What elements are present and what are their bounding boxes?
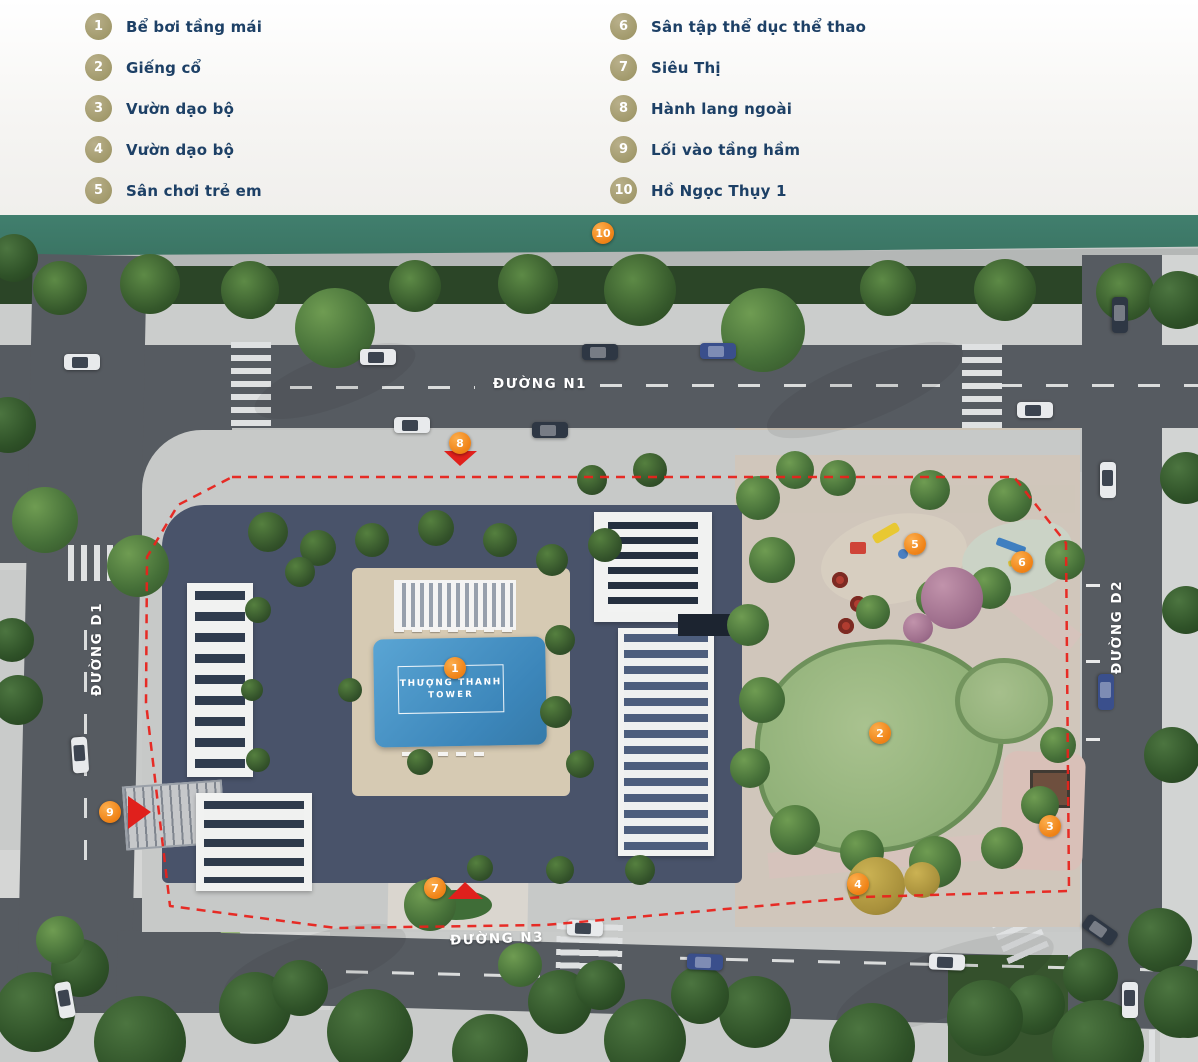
legend-item: 4Vườn dạo bộ — [85, 136, 262, 163]
tree — [1063, 948, 1118, 1003]
tree — [604, 254, 676, 326]
lane-tick — [1086, 660, 1100, 663]
tree — [588, 528, 622, 562]
car — [1112, 297, 1128, 333]
legend-number-badge: 7 — [610, 54, 637, 81]
pool-lounger — [394, 628, 404, 632]
tower-name-line1: THƯỢNG THANH — [400, 677, 502, 689]
louvers — [624, 634, 708, 850]
legend-item-label: Lối vào tầng hầm — [651, 141, 800, 159]
tower-name-line2: TOWER — [428, 690, 474, 701]
louvers — [195, 591, 245, 769]
pool-lounger — [474, 752, 484, 756]
tree — [947, 980, 1023, 1056]
car-roof — [1125, 990, 1136, 1006]
louvers — [204, 801, 304, 883]
tree — [633, 453, 667, 487]
tree — [974, 259, 1036, 321]
tree — [338, 678, 362, 702]
legend-number-badge: 4 — [85, 136, 112, 163]
site-plan-page: THƯỢNG THANH TOWER — [0, 0, 1198, 1062]
pool-lounger — [484, 628, 494, 632]
car-roof — [1103, 470, 1114, 486]
play-frame — [850, 542, 866, 554]
tree — [1040, 727, 1076, 763]
legend-item-label: Sân chơi trẻ em — [126, 182, 262, 200]
legend: 1Bể bơi tầng mái2Giếng cổ3Vườn dạo bộ4Vư… — [0, 0, 1198, 215]
tree — [904, 862, 940, 898]
legend-item: 6Sân tập thể dục thể thao — [610, 13, 866, 40]
car-roof — [1025, 405, 1041, 416]
legend-item-label: Vườn dạo bộ — [126, 141, 234, 159]
legend-item: 1Bể bơi tầng mái — [85, 13, 262, 40]
pool-lounger — [448, 628, 458, 632]
tree — [566, 750, 594, 778]
tree — [856, 595, 890, 629]
legend-number-badge: 3 — [85, 95, 112, 122]
car — [360, 349, 396, 365]
tree — [498, 254, 558, 314]
map-marker-9: 9 — [99, 801, 121, 823]
map-marker-4: 4 — [847, 873, 869, 895]
legend-number-badge: 2 — [85, 54, 112, 81]
legend-item-label: Bể bơi tầng mái — [126, 18, 262, 36]
pool-lounger — [412, 628, 422, 632]
tree — [903, 613, 933, 643]
pool-lounger — [466, 628, 476, 632]
tree — [730, 748, 770, 788]
tree — [467, 855, 493, 881]
car — [64, 354, 100, 370]
tree — [671, 966, 729, 1024]
legend-number-badge: 1 — [85, 13, 112, 40]
tree — [1045, 540, 1085, 580]
legend-item: 10Hồ Ngọc Thụy 1 — [610, 177, 866, 204]
tree — [245, 597, 271, 623]
tree — [749, 537, 795, 583]
tree — [820, 460, 856, 496]
round-bench — [838, 618, 854, 634]
map-marker-7: 7 — [424, 877, 446, 899]
map-marker-1: 1 — [444, 657, 466, 679]
legend-item: 7Siêu Thị — [610, 54, 866, 81]
tree — [248, 512, 288, 552]
pool-lounger — [438, 752, 448, 756]
tree — [33, 261, 87, 315]
road-label-d1: ĐƯỜNG D1 — [89, 569, 105, 729]
tree — [981, 827, 1023, 869]
legend-item: 9Lối vào tầng hầm — [610, 136, 866, 163]
tree — [625, 855, 655, 885]
car-roof — [575, 922, 591, 934]
crosswalk — [962, 344, 1002, 430]
tree — [910, 470, 950, 510]
car — [929, 953, 966, 970]
tree — [285, 557, 315, 587]
legend-item-label: Vườn dạo bộ — [126, 100, 234, 118]
rooftop-louver-block-east — [618, 628, 714, 856]
legend-item: 5Sân chơi trẻ em — [85, 177, 262, 204]
tree — [575, 960, 625, 1010]
tree — [536, 544, 568, 576]
legend-item: 2Giếng cổ — [85, 54, 262, 81]
tree — [860, 260, 916, 316]
car — [1100, 462, 1116, 498]
tree — [1149, 271, 1198, 329]
tree — [546, 856, 574, 884]
car — [1122, 982, 1138, 1018]
legend-column-right: 6Sân tập thể dục thể thao7Siêu Thị8Hành … — [610, 13, 866, 204]
legend-column-left: 1Bể bơi tầng mái2Giếng cổ3Vườn dạo bộ4Vư… — [85, 13, 262, 204]
tree — [272, 960, 328, 1016]
tree — [770, 805, 820, 855]
tree — [418, 510, 454, 546]
car-roof — [1115, 305, 1126, 321]
pool-lounger — [430, 628, 440, 632]
tree — [988, 478, 1032, 522]
tree — [736, 476, 780, 520]
pool-lounger — [456, 752, 466, 756]
tree — [12, 487, 78, 553]
tree — [498, 943, 542, 987]
louvers — [608, 522, 698, 612]
car-roof — [58, 989, 72, 1007]
legend-item-label: Hồ Ngọc Thụy 1 — [651, 182, 787, 200]
map-marker-8: 8 — [449, 432, 471, 454]
ancient-well-green-lobe — [955, 658, 1053, 744]
legend-item-label: Sân tập thể dục thể thao — [651, 18, 866, 36]
road-label-n1: ĐƯỜNG N1 — [460, 376, 620, 392]
tree — [107, 535, 169, 597]
car-roof — [402, 420, 418, 431]
legend-item-label: Siêu Thị — [651, 59, 721, 77]
lane-dash — [1000, 384, 1198, 387]
car — [700, 343, 736, 359]
car-roof — [695, 956, 711, 968]
map-marker-10: 10 — [592, 222, 614, 244]
pool-lounger — [502, 628, 512, 632]
lane-tick — [1086, 738, 1100, 741]
car — [71, 736, 89, 773]
tree — [577, 465, 607, 495]
car-roof — [540, 425, 556, 436]
tree — [727, 604, 769, 646]
legend-number-badge: 6 — [610, 13, 637, 40]
legend-number-badge: 5 — [85, 177, 112, 204]
car-roof — [937, 956, 953, 968]
tree — [355, 523, 389, 557]
tree — [719, 976, 791, 1048]
car — [394, 417, 430, 433]
roof-connector — [678, 614, 730, 636]
car — [687, 953, 724, 970]
map-marker-5: 5 — [904, 533, 926, 555]
legend-number-badge: 10 — [610, 177, 637, 204]
legend-item-label: Hành lang ngoài — [651, 100, 792, 118]
car-roof — [72, 357, 88, 368]
car-roof — [708, 346, 724, 357]
tree — [721, 288, 805, 372]
round-bench — [832, 572, 848, 588]
legend-number-badge: 8 — [610, 95, 637, 122]
tree — [389, 260, 441, 312]
pool-pergola — [394, 580, 516, 630]
tree — [739, 677, 785, 723]
car — [1017, 402, 1053, 418]
tree — [1144, 727, 1198, 783]
tree — [776, 451, 814, 489]
tree — [407, 749, 433, 775]
car-roof — [368, 352, 384, 363]
road-label-d2: ĐƯỜNG D2 — [1109, 547, 1125, 707]
tree — [545, 625, 575, 655]
car — [582, 344, 618, 360]
rooftop-pool: THƯỢNG THANH TOWER — [373, 637, 547, 748]
legend-item: 8Hành lang ngoài — [610, 95, 866, 122]
legend-item-label: Giếng cổ — [126, 59, 201, 77]
tree — [120, 254, 180, 314]
tree — [36, 916, 84, 964]
tree — [1128, 908, 1192, 972]
tree — [246, 748, 270, 772]
lane-tick — [1086, 584, 1100, 587]
rooftop-louver-block-southwest — [196, 793, 312, 891]
tree — [241, 679, 263, 701]
rooftop-louver-block-west — [187, 583, 253, 777]
car — [532, 422, 568, 438]
car-roof — [74, 745, 86, 762]
car-roof — [590, 347, 606, 358]
legend-number-badge: 9 — [610, 136, 637, 163]
map-marker-2: 2 — [869, 722, 891, 744]
map-marker-3: 3 — [1039, 815, 1061, 837]
tree — [221, 261, 279, 319]
tree — [540, 696, 572, 728]
legend-item: 3Vườn dạo bộ — [85, 95, 262, 122]
tree — [483, 523, 517, 557]
map-marker-6: 6 — [1011, 551, 1033, 573]
